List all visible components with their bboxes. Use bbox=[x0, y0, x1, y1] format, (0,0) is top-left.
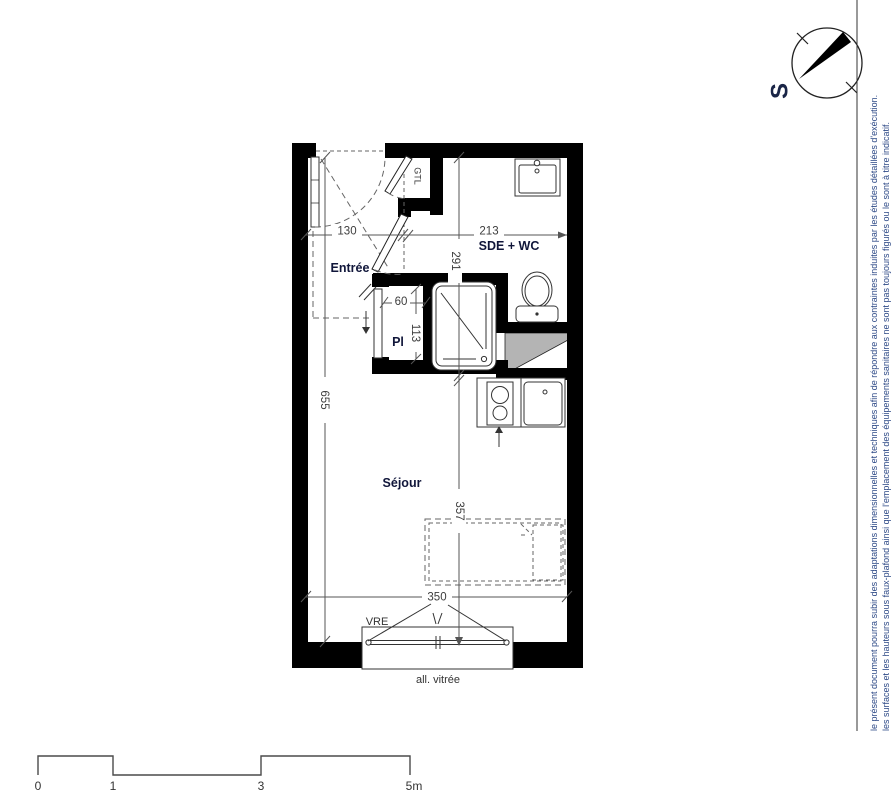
bed-outline bbox=[425, 519, 565, 585]
floor-plan-drawing: 130 213 291 357 655 350 60 1 bbox=[0, 0, 892, 800]
dim-sde-depth: 291 bbox=[449, 251, 461, 270]
door-hinge-post bbox=[398, 198, 411, 217]
dim-sde-width: 213 bbox=[479, 226, 498, 238]
pillow-outline bbox=[533, 525, 563, 580]
room-label-sejour: Séjour bbox=[383, 476, 422, 490]
wall-left bbox=[292, 143, 308, 668]
window-v-mark bbox=[438, 613, 442, 624]
wall-right bbox=[567, 143, 583, 668]
closet-corner-top bbox=[372, 274, 389, 287]
room-label-gtl: GTL bbox=[413, 167, 423, 185]
scale-bar-line bbox=[38, 756, 410, 775]
dim-left-height: 655 bbox=[318, 390, 330, 409]
closet-corner-bottom bbox=[372, 357, 389, 373]
cooktop-icon bbox=[487, 382, 513, 425]
bathroom-door-leaf bbox=[372, 214, 408, 272]
dim-placard-depth: 113 bbox=[409, 324, 421, 342]
window-v-mark bbox=[433, 613, 436, 624]
room-label-entree: Entrée bbox=[331, 261, 370, 275]
entry-guide-diagonal bbox=[321, 159, 389, 269]
scale-bar: 0 1 3 5m bbox=[35, 756, 423, 793]
kitchen-sink-icon bbox=[524, 382, 562, 425]
toilet-icon bbox=[516, 272, 558, 322]
floor-plan-page: 130 213 291 357 655 350 60 1 bbox=[0, 0, 892, 800]
entry-door-leaf bbox=[311, 157, 319, 227]
window-shutter-label: VRE bbox=[366, 616, 389, 628]
wall-top-left-stub bbox=[292, 143, 316, 158]
window-frame bbox=[362, 627, 513, 669]
dim-sejour-depth: 357 bbox=[453, 501, 465, 520]
closet-door-leaf bbox=[374, 289, 382, 358]
window bbox=[362, 604, 513, 669]
scale-label-5m: 5m bbox=[406, 779, 423, 793]
bathroom-sink-icon bbox=[515, 159, 560, 196]
wall-bottom-right bbox=[509, 642, 583, 668]
side-note-line2: les surfaces et les hauteurs sous faux-p… bbox=[881, 122, 891, 731]
closet-arrow-head bbox=[362, 327, 370, 334]
side-note-line1: le présent document pourra subir des ada… bbox=[869, 95, 879, 731]
scale-label-1: 1 bbox=[110, 779, 117, 793]
gtl-door-leaf bbox=[385, 156, 412, 194]
duct-shade bbox=[505, 333, 568, 371]
compass-icon: S bbox=[766, 28, 862, 99]
compass-needle bbox=[799, 32, 851, 79]
side-note: le présent document pourra subir des ada… bbox=[857, 0, 891, 731]
scale-label-0: 0 bbox=[35, 779, 42, 793]
scale-label-3: 3 bbox=[258, 779, 265, 793]
doors-and-guides bbox=[311, 151, 412, 358]
wall-under-toilet bbox=[505, 322, 567, 333]
dim-placard-width: 60 bbox=[395, 296, 408, 308]
blanket-fold-mark bbox=[521, 524, 532, 535]
room-label-placard: Pl bbox=[392, 335, 404, 349]
dim-entree-width: 130 bbox=[337, 226, 356, 238]
dim-window-width: 350 bbox=[427, 592, 446, 604]
wall-bottom-left bbox=[292, 642, 367, 668]
compass-south-label: S bbox=[766, 83, 793, 99]
wall-top bbox=[385, 143, 583, 158]
shower-icon bbox=[432, 282, 496, 370]
room-label-sde-wc: SDE + WC bbox=[479, 239, 540, 253]
window-caption: all. vitrée bbox=[416, 674, 460, 686]
kitchenette bbox=[477, 378, 565, 447]
